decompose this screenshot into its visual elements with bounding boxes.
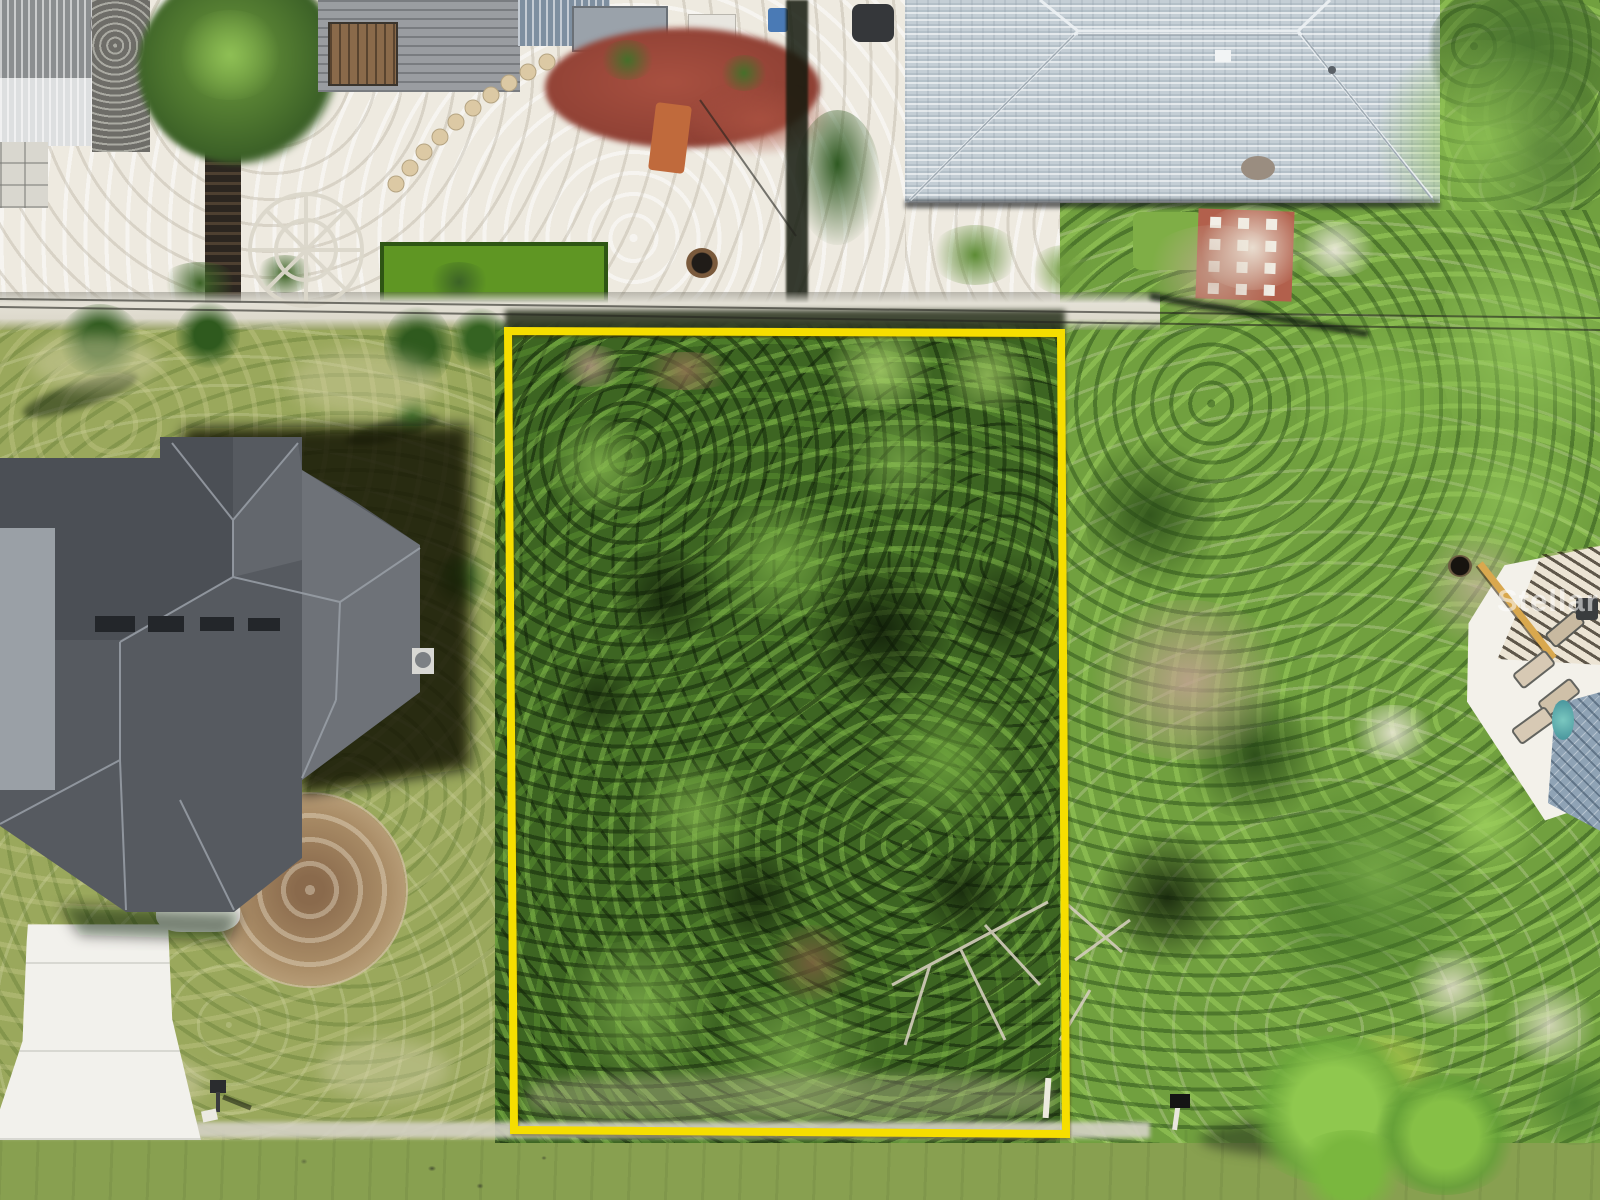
right-dark-shadow	[1095, 830, 1240, 965]
right-sand-patch-2	[1345, 705, 1440, 760]
aerial-photo: StellarMLS	[0, 0, 1600, 1200]
flower-shrub-2	[255, 255, 315, 293]
wood-deck	[328, 22, 398, 86]
shed-roof-dark	[0, 0, 92, 80]
lot-shadow-1	[600, 550, 730, 640]
lot-shadow-5	[955, 545, 1055, 675]
right-sand-patch-1	[1195, 205, 1310, 290]
right-house-eave-shadow	[905, 200, 1440, 208]
concrete-blocks	[0, 142, 48, 208]
mulch-shrub	[600, 40, 655, 80]
lot-brown-ground	[765, 925, 860, 1000]
lot-dried-patch-1	[630, 352, 740, 390]
lot-canopy-light-7	[835, 410, 965, 510]
lot-canopy-light-1	[540, 420, 660, 510]
fire-pit	[686, 248, 718, 278]
watermark: StellarMLS	[1497, 583, 1600, 619]
lot-shadow-4	[905, 850, 1020, 935]
yard-tree-small	[438, 552, 478, 592]
dirt-tongue	[195, 770, 285, 830]
lot-palms-top-2	[930, 340, 1045, 410]
grass-pale-patch-1	[30, 335, 160, 390]
right-bright-canopy-1	[1370, 40, 1600, 240]
dark-barrel	[1448, 555, 1472, 577]
right-sand-patch-4	[1500, 985, 1600, 1065]
lot-bottom-sand-band	[528, 1075, 1053, 1120]
lot-dried-patch-2	[553, 345, 628, 387]
palmetto-2	[176, 302, 240, 368]
blue-bin	[768, 8, 788, 32]
right-sand-patch-3	[1405, 950, 1500, 1025]
grass-pale-patch-2	[290, 350, 440, 415]
left-mailbox-post	[216, 1092, 220, 1112]
grass-pale-patch-4	[320, 1040, 450, 1100]
palmetto-4	[450, 308, 510, 370]
right-dark-shrub-1	[1085, 430, 1215, 600]
mulch-shrub-2	[720, 55, 768, 91]
backyard-east-fence	[786, 0, 808, 310]
spa-water	[1552, 700, 1574, 740]
right-pink-dried-1	[1080, 600, 1295, 760]
tree-canopy-highlight	[175, 10, 285, 100]
right-house-metal-roof	[905, 0, 1440, 203]
road-overhang-canopy-3	[1290, 1130, 1410, 1200]
grill-equipment	[852, 4, 894, 42]
lot-palms-top-1	[815, 330, 945, 410]
strip-shrub-1	[930, 225, 1020, 285]
strip-shrub-2	[1030, 245, 1100, 295]
lot-shadow-6	[545, 660, 650, 735]
right-mailbox	[1170, 1094, 1190, 1108]
lot-shadow-2	[810, 545, 950, 715]
alley-hedge-shadow	[505, 310, 1065, 332]
shed-roof-light	[0, 78, 92, 146]
entry-red-shrub	[146, 888, 174, 912]
